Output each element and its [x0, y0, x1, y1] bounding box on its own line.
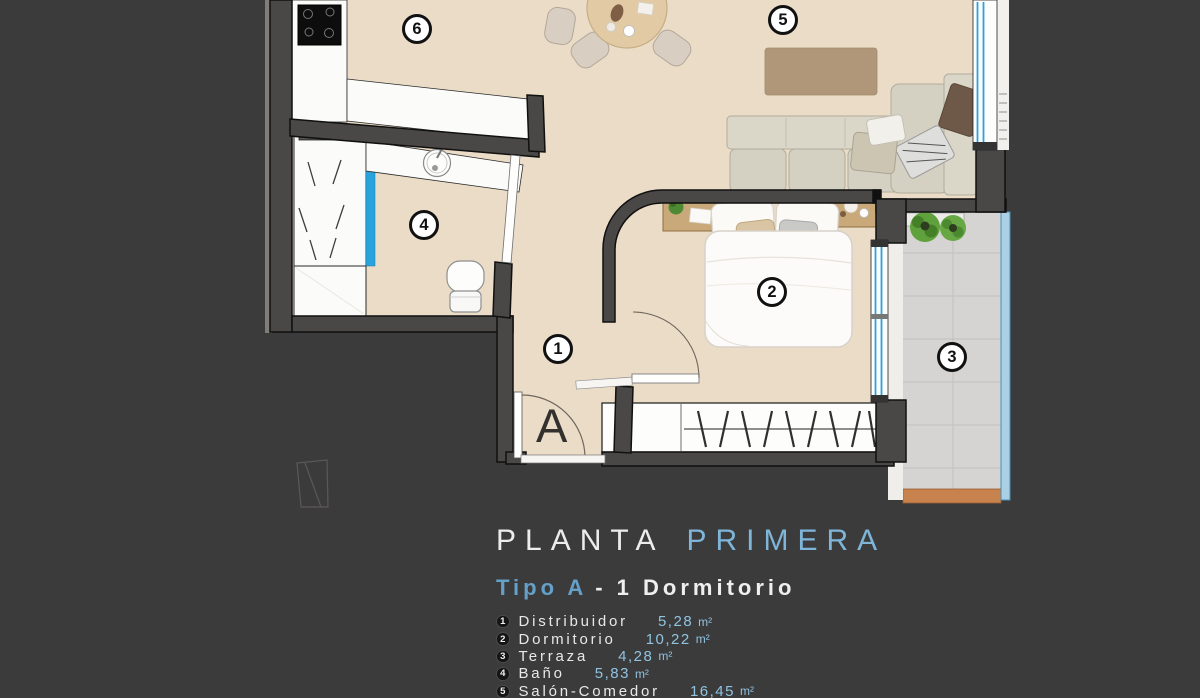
shower-tray — [294, 136, 366, 266]
room-marker-terraza: 3 — [937, 342, 967, 372]
wall-bottom — [602, 452, 894, 466]
bedroom-door-leaf — [632, 374, 699, 383]
title-accent: PRIMERA — [686, 524, 886, 557]
wardrobe — [602, 403, 888, 452]
title-primary: PLANTA — [496, 524, 664, 557]
legend-row-1: 1Distribuidor5,28m² — [496, 613, 976, 630]
watermark-outline — [297, 460, 328, 507]
legend-room-area: 5,28 — [658, 613, 693, 630]
legend-area-unit: m² — [698, 615, 712, 629]
wall-bath-door-post — [493, 262, 512, 318]
rug — [765, 48, 877, 95]
legend-room-area: 4,28 — [618, 648, 653, 665]
legend-bullet: 4 — [496, 667, 510, 681]
sofa-pillow-white — [866, 114, 906, 146]
legend-room-area: 5,83 — [595, 665, 630, 682]
legend-row-2: 2Dormitorio10,22m² — [496, 630, 976, 647]
cooktop — [298, 5, 341, 45]
legend-area-unit: m² — [635, 667, 649, 681]
subtitle-rest: - 1 Dormitorio — [595, 575, 795, 600]
legend-row-4: 4Baño5,83m² — [496, 665, 976, 682]
window-living-room — [973, 0, 1009, 150]
plan-subtitle: Tipo A- 1 Dormitorio — [496, 575, 976, 601]
floorplan-svg — [0, 0, 1200, 510]
sliding-door-terrace — [871, 240, 888, 402]
entrance-threshold — [521, 455, 605, 463]
wall-salon-terrace-block — [976, 149, 1005, 212]
wall-bedroom-door-post — [614, 386, 633, 453]
wall-corridor-left — [497, 316, 513, 462]
entrance-door-frame — [514, 392, 522, 458]
legend-area-unit: m² — [740, 684, 754, 698]
wall-bath-bottom — [292, 316, 513, 332]
legend-bullet: 3 — [496, 650, 510, 664]
nightstand-left — [663, 200, 718, 232]
room-marker-cocina: 6 — [402, 14, 432, 44]
legend-area-unit: m² — [658, 649, 672, 663]
entrance-label: A — [536, 402, 567, 449]
legend-room-name: Dormitorio — [519, 631, 616, 648]
legend-list: 1Distribuidor5,28m²2Dormitorio10,22m²3Te… — [496, 613, 976, 698]
page-title: PLANTAPRIMERA — [496, 524, 976, 558]
terrace-glass-railing — [1001, 212, 1010, 500]
wall-left-exterior — [270, 0, 292, 332]
legend-room-name: Salón-Comedor — [519, 683, 660, 698]
wall-terrace-bottom-block — [876, 400, 906, 462]
room-marker-bano: 4 — [409, 210, 439, 240]
subtitle-accent: Tipo A — [496, 575, 587, 600]
legend-room-name: Terraza — [519, 648, 589, 665]
legend-bullet: 1 — [496, 615, 510, 629]
terrace-edge-strip — [903, 489, 1001, 503]
wall-terrace-corner — [876, 199, 906, 243]
legend-room-area: 10,22 — [646, 631, 691, 648]
screen: 123456 A PLANTAPRIMERA Tipo A- 1 Dormito… — [0, 0, 1200, 698]
room-marker-dormitorio: 2 — [757, 277, 787, 307]
legend-room-name: Baño — [519, 665, 565, 682]
legend-block: PLANTAPRIMERA Tipo A- 1 Dormitorio 1Dist… — [496, 524, 976, 698]
legend-bullet: 2 — [496, 632, 510, 646]
legend-room-area: 16,45 — [690, 683, 735, 698]
bed — [705, 200, 852, 347]
room-marker-salon-comedor: 5 — [768, 5, 798, 35]
room-marker-distribuidor: 1 — [543, 334, 573, 364]
floorplan: 123456 A — [0, 0, 1200, 510]
legend-row-3: 3Terraza4,28m² — [496, 648, 976, 665]
wall-kitchen-end-post — [527, 95, 545, 152]
toilet — [447, 261, 484, 312]
legend-bullet: 5 — [496, 685, 510, 698]
legend-area-unit: m² — [696, 632, 710, 646]
legend-row-5: 5Salón-Comedor16,45m² — [496, 683, 976, 698]
legend-room-name: Distribuidor — [519, 613, 628, 630]
